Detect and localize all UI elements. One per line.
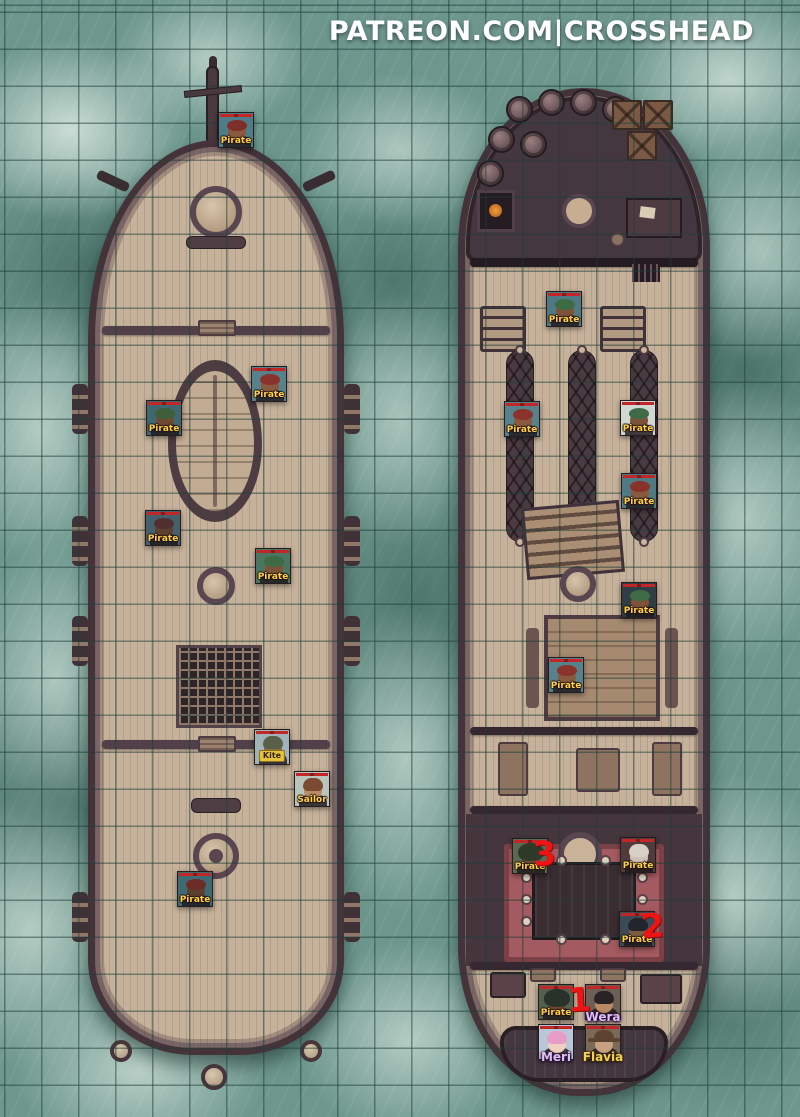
marker-1[interactable]: 1 (567, 979, 592, 1019)
marker-layer: 321 (0, 0, 800, 1117)
patreon-watermark: PATREON.COM|CROSSHEAD (329, 16, 754, 47)
marker-3[interactable]: 3 (532, 833, 557, 873)
battle-map[interactable]: PATREON.COM|CROSSHEAD (0, 0, 800, 1117)
marker-2[interactable]: 2 (640, 905, 665, 945)
